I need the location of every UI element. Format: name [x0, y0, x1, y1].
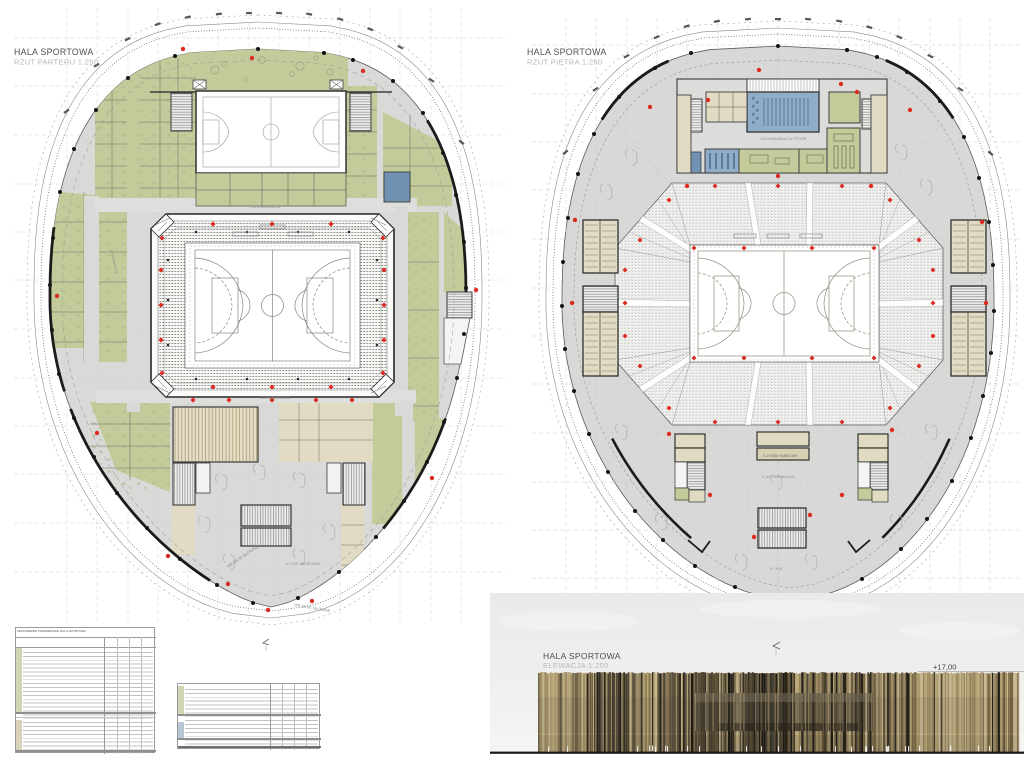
- svg-text:RZUT PARTERU 1:250: RZUT PARTERU 1:250: [14, 58, 98, 67]
- svg-text:+17,00: +17,00: [933, 663, 956, 672]
- svg-text:K.4 KIOSK HANDLOWY: K.4 KIOSK HANDLOWY: [763, 454, 799, 458]
- svg-text:RZUT PIĘTRA 1:250: RZUT PIĘTRA 1:250: [527, 58, 602, 67]
- svg-text:K.1 HOL WEJŚCIOWY: K.1 HOL WEJŚCIOWY: [286, 561, 321, 566]
- svg-text:HALA SPORTOWA: HALA SPORTOWA: [14, 47, 94, 57]
- svg-text:K.16 KOMUNIKACJA: K.16 KOMUNIKACJA: [762, 475, 795, 479]
- svg-text:K.1 HOL: K.1 HOL: [770, 567, 783, 571]
- svg-text:HALA SPORTOWA: HALA SPORTOWA: [527, 47, 607, 57]
- svg-text:J.25 KOMUNIKACJA: J.25 KOMUNIKACJA: [250, 205, 281, 209]
- svg-text:ELEWACJA 1:250: ELEWACJA 1:250: [543, 661, 609, 670]
- svg-text:HALA SPORTOWA: HALA SPORTOWA: [543, 651, 621, 661]
- svg-text:L.12 KOMUNIKACJA: L.12 KOMUNIKACJA: [260, 396, 291, 400]
- svg-text:WEJŚCIE GŁÓWNE: WEJŚCIE GŁÓWNE: [294, 602, 331, 613]
- svg-text:J.23 KOMUNIKACJA / FOYER: J.23 KOMUNIKACJA / FOYER: [760, 137, 807, 141]
